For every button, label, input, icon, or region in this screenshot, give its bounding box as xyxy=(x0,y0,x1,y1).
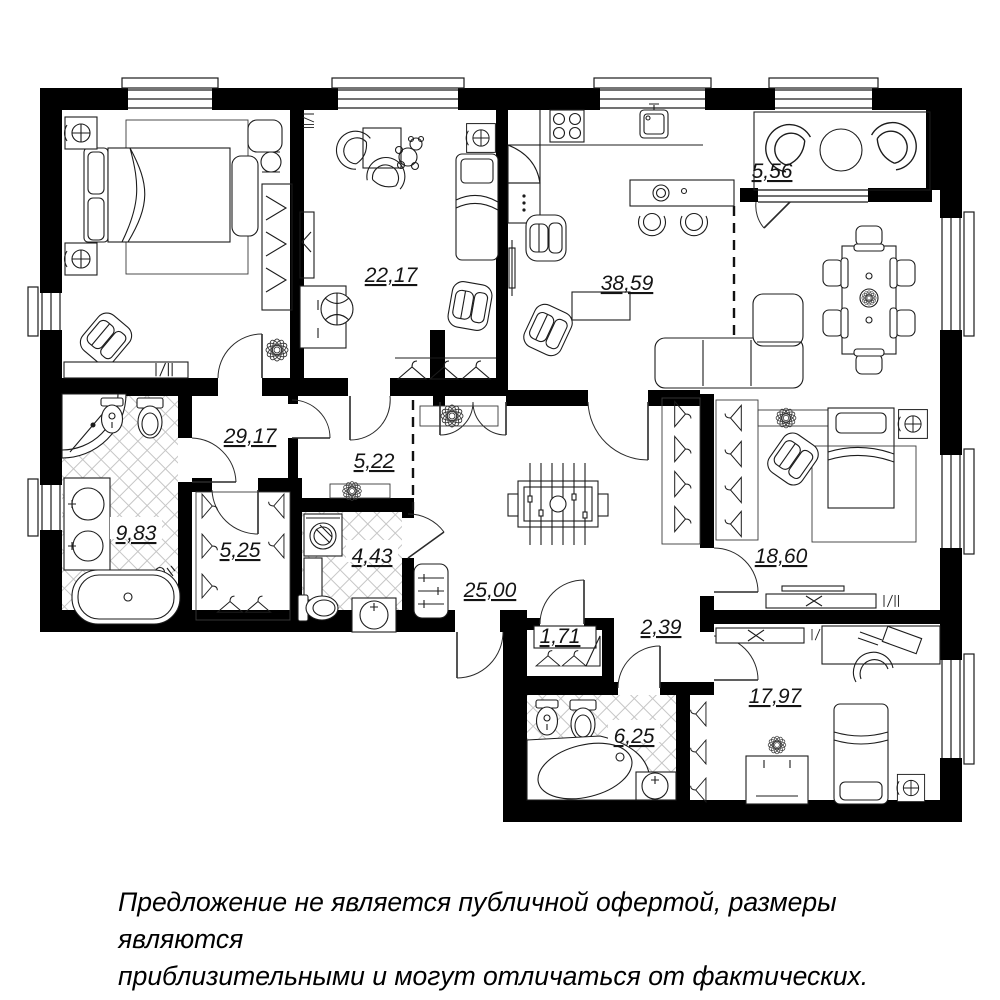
cabinet xyxy=(304,558,322,600)
plant-icon xyxy=(768,736,787,755)
door-living-single xyxy=(588,402,648,460)
hall-radiator xyxy=(414,564,448,618)
dining-table xyxy=(823,226,915,374)
master-bedroom-furniture xyxy=(64,117,292,378)
nightstand-lamp xyxy=(65,243,98,275)
nightstand-lamp xyxy=(898,410,927,439)
hangers xyxy=(691,702,706,802)
armchair xyxy=(76,309,136,370)
bedroom-1797-furniture xyxy=(691,626,940,804)
stove xyxy=(550,110,584,142)
disclaimer-line-1: Предложение не является публичной оферто… xyxy=(118,887,837,954)
door-children-room xyxy=(350,396,390,440)
room-label-wardrobe: 5,25 xyxy=(220,539,261,562)
bedroom-1860-furniture xyxy=(716,400,927,608)
window-top-2 xyxy=(332,78,464,108)
single-bed xyxy=(456,154,498,260)
radiator-icon xyxy=(884,595,898,607)
vanity-sinks xyxy=(64,478,110,570)
tv-panel xyxy=(509,240,515,296)
hall-shelf-plant xyxy=(420,404,498,428)
dresser xyxy=(746,736,808,804)
door-bathroom-625 xyxy=(618,646,660,688)
foosball-table xyxy=(508,463,608,545)
window-right-2 xyxy=(942,449,974,554)
bidet xyxy=(536,700,558,735)
pouf xyxy=(248,120,282,152)
kitchen-sink xyxy=(640,104,668,138)
window-right-1 xyxy=(942,212,974,336)
sink-round xyxy=(636,772,676,800)
double-bed xyxy=(84,148,258,242)
armchair xyxy=(526,215,566,261)
toilet xyxy=(570,700,596,740)
window-left-1 xyxy=(28,287,60,336)
door-hall-29-to-522 xyxy=(292,400,330,438)
room-label-bathroom-kids: 6,25 xyxy=(614,725,655,748)
double-bed xyxy=(828,408,894,508)
desk xyxy=(822,626,940,682)
room-label-bedroom: 18,60 xyxy=(755,545,808,568)
round-chair xyxy=(321,293,353,325)
armchair xyxy=(446,280,493,332)
window-top-1 xyxy=(122,78,218,108)
wardrobe-column xyxy=(716,400,758,540)
disclaimer-text: Предложение не является публичной оферто… xyxy=(118,884,938,995)
window-balcony-inner xyxy=(758,190,868,202)
tv-console xyxy=(766,586,876,608)
plant-icon xyxy=(265,338,289,362)
toilet xyxy=(137,398,163,438)
room-label-hallway: 29,17 xyxy=(223,425,278,448)
room-label-entrance-hall: 25,00 xyxy=(463,579,517,602)
floor-plan: 5,56 22,17 38,59 29,17 5,22 9,83 5,25 4,… xyxy=(0,0,1000,1000)
disclaimer-line-2: приблизительными и могут отличаться от ф… xyxy=(118,961,868,991)
armchair xyxy=(763,429,822,490)
children-room-furniture xyxy=(300,114,498,379)
window-balcony-top xyxy=(769,78,878,108)
room-label-bathroom-master: 9,83 xyxy=(116,522,157,545)
desk-chair xyxy=(261,152,281,172)
shelf-plant xyxy=(758,407,832,428)
radiator-icon xyxy=(303,114,314,128)
play-table xyxy=(363,128,401,168)
single-bed xyxy=(834,704,888,804)
room-label-inner-hall: 5,22 xyxy=(354,450,395,473)
hall-wardrobe xyxy=(662,398,700,544)
room-label-corridor: 2,39 xyxy=(640,616,682,639)
door-bathroom-443 xyxy=(408,514,444,558)
radiator xyxy=(64,362,188,378)
room-label-kitchen-living: 38,59 xyxy=(601,272,654,295)
door-wardrobe-525 xyxy=(212,490,258,534)
door-closet-171 xyxy=(540,580,584,624)
washing-machine xyxy=(304,514,342,556)
door-bedroom1 xyxy=(218,334,262,378)
door-bedroom-1860 xyxy=(714,548,758,592)
room-label-bathroom-guest: 4,43 xyxy=(352,545,393,568)
room-label-closet: 1,71 xyxy=(540,625,581,648)
floor-plan-page: 5,56 22,17 38,59 29,17 5,22 9,83 5,25 4,… xyxy=(0,0,1000,1000)
nightstand-lamp xyxy=(466,124,495,153)
kitchen-living-furniture xyxy=(508,104,915,388)
door-entrance xyxy=(457,632,503,678)
hall2-shelf-plant xyxy=(330,481,390,501)
window-left-2 xyxy=(28,479,60,536)
window-right-3 xyxy=(942,654,974,764)
balcony-table xyxy=(820,129,862,171)
sink-round xyxy=(352,598,396,632)
balcony-chair-right xyxy=(869,113,926,173)
corner-sofa xyxy=(655,294,803,388)
nightstand-lamp xyxy=(897,774,925,801)
room-label-children-room: 22,17 xyxy=(364,264,419,287)
room-label-bedroom-kids: 17,97 xyxy=(749,685,803,708)
bidet xyxy=(101,398,123,433)
hanger-rail xyxy=(395,358,496,379)
door-balcony xyxy=(756,202,790,228)
kitchen-island xyxy=(630,180,734,236)
armchair xyxy=(520,301,576,360)
room-label-balcony: 5,56 xyxy=(752,160,793,183)
dresser xyxy=(300,286,353,348)
coffee-table xyxy=(572,292,630,320)
wardrobe-strip xyxy=(262,184,292,310)
nightstand-lamp xyxy=(65,117,98,149)
tv-console xyxy=(716,628,804,643)
bathtub xyxy=(72,570,180,624)
toilet xyxy=(298,595,338,621)
